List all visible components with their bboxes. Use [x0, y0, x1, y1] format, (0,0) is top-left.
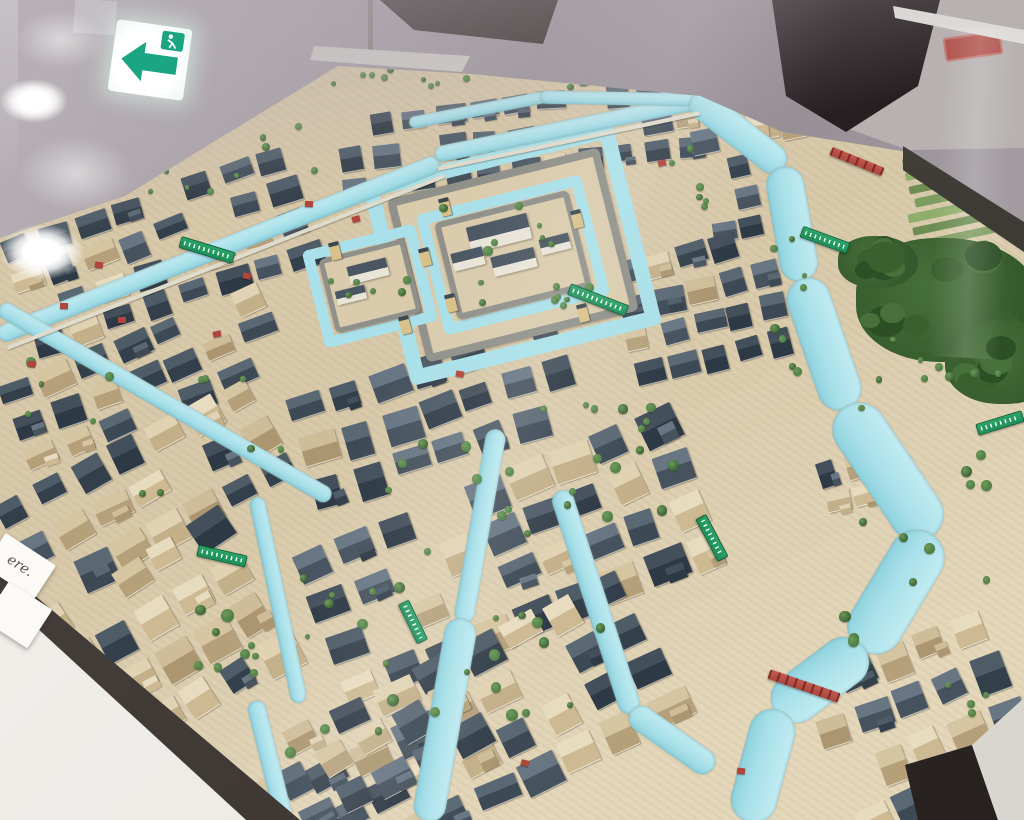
tree: [461, 441, 471, 451]
tree: [345, 292, 352, 299]
tree: [194, 661, 203, 670]
building: [725, 302, 753, 332]
tree: [421, 77, 426, 82]
tree: [770, 245, 777, 252]
building: [229, 191, 259, 218]
building: [238, 312, 279, 344]
tree: [381, 74, 388, 81]
building: [419, 389, 464, 431]
tree: [202, 375, 209, 382]
tree: [331, 81, 336, 86]
tree: [669, 160, 675, 166]
tree: [524, 530, 531, 537]
building: [660, 317, 690, 347]
tree: [935, 363, 943, 371]
tree: [252, 653, 259, 660]
tree: [703, 198, 709, 204]
tree: [793, 367, 802, 376]
tree: [202, 111, 208, 117]
tree: [555, 294, 561, 300]
tree: [657, 505, 668, 516]
tree: [424, 548, 431, 555]
exit-sign-reflection: [107, 19, 192, 101]
building: [265, 174, 304, 208]
building: [134, 595, 181, 642]
tree: [418, 439, 428, 449]
tree: [478, 280, 484, 286]
building: [111, 556, 155, 598]
building: [352, 718, 391, 755]
tree: [185, 185, 190, 190]
tree: [139, 490, 146, 497]
light-glare: [0, 79, 68, 123]
tree: [966, 480, 975, 489]
tree: [553, 283, 560, 290]
building: [555, 729, 602, 774]
museum-photo: ere.: [0, 0, 1024, 820]
tree: [876, 376, 882, 382]
tree: [602, 511, 612, 521]
tree: [164, 169, 169, 174]
tree: [687, 145, 695, 153]
tree: [435, 81, 440, 86]
tree: [945, 682, 951, 688]
tree: [489, 649, 501, 661]
red-structure: [60, 303, 68, 309]
building: [890, 680, 929, 719]
tree: [618, 404, 627, 413]
building: [354, 568, 396, 605]
red-structure: [305, 201, 313, 207]
tree: [515, 202, 523, 210]
tree: [961, 466, 973, 478]
building: [969, 650, 1013, 698]
tree: [305, 634, 311, 640]
forest-canopy: [903, 315, 929, 336]
tree: [383, 660, 390, 667]
tree: [295, 123, 302, 130]
forest-canopy: [880, 303, 905, 323]
building: [694, 308, 728, 334]
red-structure: [351, 215, 360, 223]
building: [339, 145, 365, 174]
tree: [491, 239, 498, 246]
tree: [636, 446, 643, 453]
tree: [540, 235, 546, 241]
tree: [214, 663, 223, 672]
building: [684, 276, 717, 307]
forest-canopy: [866, 242, 905, 273]
tree: [696, 194, 703, 201]
tree: [593, 454, 602, 463]
red-structure: [118, 317, 126, 323]
building: [950, 610, 989, 650]
forest-canopy: [986, 336, 1016, 360]
tree: [967, 700, 975, 708]
tree: [311, 167, 318, 174]
tree: [278, 446, 285, 453]
tree: [403, 276, 411, 284]
building: [378, 513, 416, 550]
building: [105, 434, 145, 476]
tree: [260, 134, 266, 140]
building-small: [692, 255, 707, 268]
building-small: [625, 156, 636, 165]
tree: [482, 62, 490, 70]
building: [368, 363, 414, 405]
tree: [195, 605, 205, 615]
tree: [945, 372, 954, 381]
tree: [596, 623, 605, 632]
building: [541, 693, 583, 737]
tree: [157, 489, 164, 496]
tree: [483, 246, 492, 255]
building: [0, 494, 29, 529]
tree: [369, 588, 376, 595]
tree: [247, 445, 254, 452]
tree: [518, 612, 525, 619]
tree: [207, 188, 214, 195]
tree: [439, 204, 447, 212]
tree: [360, 72, 366, 78]
building: [34, 359, 77, 399]
tree: [398, 459, 407, 468]
building-small: [934, 641, 950, 657]
building: [542, 354, 577, 393]
exit-arrow-icon: [107, 19, 192, 101]
red-structure: [456, 370, 465, 377]
building: [70, 452, 112, 495]
water-river-7: [726, 704, 800, 820]
red-structure: [737, 768, 745, 775]
tree: [924, 543, 935, 554]
tree: [646, 403, 655, 412]
tree: [591, 405, 598, 412]
tree: [770, 324, 780, 334]
building: [341, 420, 376, 461]
building: [548, 439, 598, 485]
tree: [567, 84, 573, 90]
building: [335, 775, 374, 814]
building: [372, 143, 401, 170]
building-small: [347, 395, 363, 411]
building: [515, 750, 567, 800]
building: [178, 676, 221, 720]
building: [815, 713, 852, 751]
building: [128, 469, 172, 508]
tree: [387, 694, 399, 706]
tree: [839, 611, 851, 623]
place-name-sign: [975, 410, 1024, 436]
light-glare-halo: [0, 123, 151, 224]
building: [702, 344, 731, 375]
paper-label-text: ere.: [4, 552, 36, 581]
building: [0, 377, 34, 406]
tree: [577, 75, 585, 83]
building: [219, 156, 255, 185]
tree: [918, 357, 923, 362]
building-small: [767, 273, 781, 288]
tree: [505, 506, 512, 513]
building: [325, 626, 370, 665]
tree: [995, 370, 1001, 376]
building: [392, 443, 433, 476]
building: [193, 615, 242, 665]
tree: [548, 241, 554, 247]
tree: [890, 337, 896, 343]
building: [735, 335, 763, 362]
light-glare-halo: [0, 0, 122, 79]
tree: [370, 288, 376, 294]
tree: [540, 406, 546, 412]
tree: [240, 376, 246, 382]
tree: [569, 488, 576, 495]
tree: [983, 576, 990, 583]
tree: [221, 609, 234, 622]
building: [298, 428, 342, 467]
tree: [472, 474, 482, 484]
red-bridge: [829, 146, 884, 175]
building: [150, 317, 181, 345]
building-small: [517, 108, 530, 118]
tree: [564, 501, 571, 508]
tree: [848, 635, 859, 646]
tree: [696, 183, 704, 191]
building: [285, 389, 326, 422]
tree: [387, 66, 394, 73]
building: [758, 291, 788, 322]
tree: [560, 302, 567, 309]
tree: [357, 619, 367, 629]
building: [292, 544, 334, 585]
tree: [970, 369, 979, 378]
building: [501, 365, 537, 399]
tree: [522, 709, 530, 717]
tree: [463, 75, 470, 82]
tree: [643, 418, 650, 425]
tree: [491, 682, 501, 692]
building: [853, 800, 894, 820]
building: [718, 266, 747, 298]
building: [162, 347, 202, 383]
building: [353, 461, 390, 502]
tree: [25, 411, 31, 417]
tree: [428, 83, 434, 89]
building: [644, 139, 671, 163]
building: [623, 508, 660, 547]
building: [369, 112, 394, 138]
building: [734, 184, 761, 210]
building: [255, 147, 287, 177]
building: [667, 349, 702, 380]
building: [458, 381, 492, 412]
building: [474, 772, 523, 812]
tree: [539, 637, 549, 647]
building: [145, 536, 182, 572]
building: [633, 357, 667, 387]
tree: [981, 480, 992, 491]
building-small: [839, 503, 852, 515]
tree: [859, 518, 867, 526]
tree: [779, 335, 786, 342]
tree: [285, 747, 296, 758]
building: [32, 472, 68, 505]
tree: [90, 418, 96, 424]
building: [503, 453, 554, 501]
building: [91, 489, 135, 527]
building: [495, 717, 536, 759]
tree: [39, 381, 45, 387]
tree: [532, 617, 543, 628]
building: [50, 393, 87, 430]
water-top-river: [540, 90, 700, 106]
tree: [394, 582, 405, 593]
tree: [921, 375, 928, 382]
building: [314, 739, 354, 779]
tree: [976, 450, 986, 460]
building: [542, 594, 585, 638]
tree: [324, 599, 333, 608]
forest: [945, 320, 1024, 404]
tree: [375, 727, 382, 734]
building: [778, 106, 809, 142]
sign-text-illegible: [980, 415, 1019, 431]
tree: [369, 72, 375, 78]
building-small: [659, 264, 674, 278]
building: [230, 282, 266, 318]
building: [52, 509, 96, 551]
tree: [638, 425, 645, 432]
tree: [581, 79, 588, 86]
building: [202, 333, 235, 362]
light-glare: [0, 224, 84, 280]
tree: [909, 578, 917, 586]
building: [512, 405, 553, 444]
tree: [105, 372, 114, 381]
forest-canopy: [931, 257, 963, 283]
building: [706, 231, 739, 265]
building: [222, 379, 256, 413]
